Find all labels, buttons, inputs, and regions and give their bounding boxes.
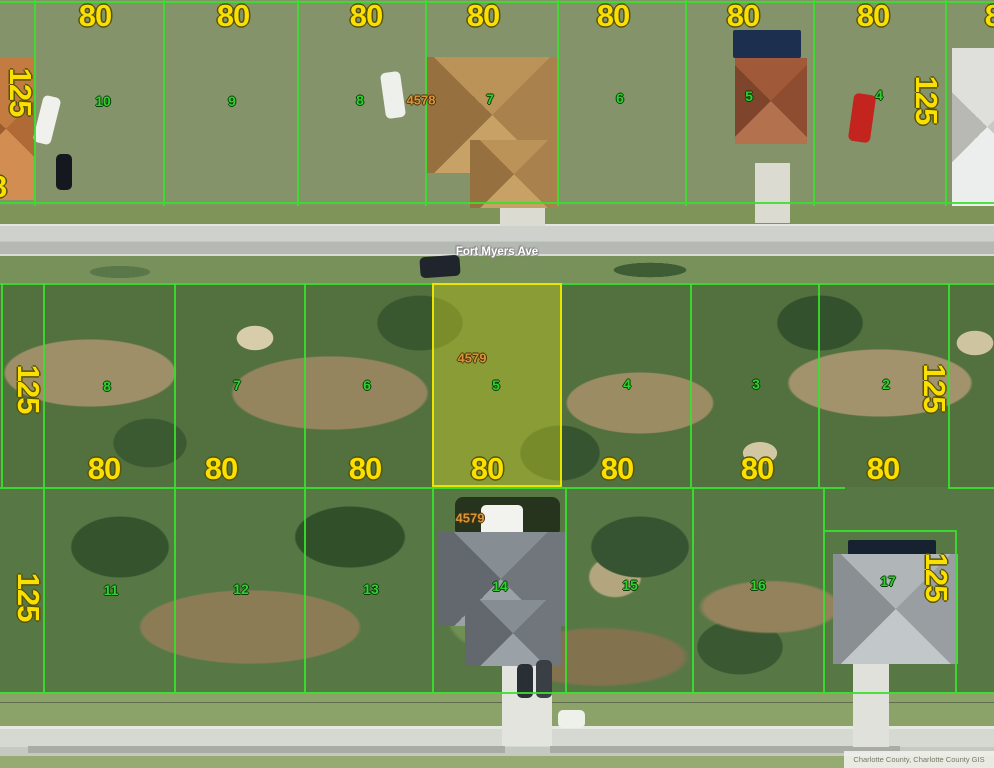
- lot-number-label: 11: [104, 582, 119, 598]
- dimension-label: 80: [601, 451, 633, 487]
- dimension-label: 125: [916, 364, 952, 413]
- dimension-label: 80: [205, 451, 237, 487]
- parcel-map-screenshot: Fort Myers Ave 8080808080808080880808080…: [0, 0, 994, 768]
- lot-number-label: 14: [492, 578, 508, 594]
- lot-number-label: 6: [616, 90, 624, 106]
- lot-number-label: 8: [103, 378, 111, 394]
- parcel-id-label: 4578: [407, 93, 436, 108]
- lot-number-label: 13: [363, 581, 379, 597]
- dimension-label: 80: [467, 0, 499, 34]
- lot-number-label: 5: [492, 377, 500, 393]
- parcel-id-label: 4579: [458, 351, 487, 366]
- dimension-label: 80: [985, 0, 994, 34]
- dimension-label: 80: [350, 0, 382, 34]
- lot-number-label: 4: [623, 376, 631, 392]
- dimension-label: 80: [349, 451, 381, 487]
- dimension-label: 80: [741, 451, 773, 487]
- dimension-label: 125: [918, 553, 954, 602]
- annotation-layer: Fort Myers Ave 8080808080808080880808080…: [0, 0, 994, 768]
- dimension-label: 80: [217, 0, 249, 34]
- street-name-label: Fort Myers Ave: [456, 246, 538, 258]
- dimension-label: 80: [727, 0, 759, 34]
- attribution-bar: Charlotte County, Charlotte County GIS: [844, 751, 994, 768]
- lot-number-label: 4: [875, 87, 883, 103]
- dimension-label: 80: [88, 451, 120, 487]
- lot-number-label: 15: [622, 577, 638, 593]
- lot-number-label: 2: [882, 376, 890, 392]
- dimension-label: 125: [2, 68, 38, 117]
- lot-number-label: 5: [745, 88, 753, 104]
- attribution-text: Charlotte County, Charlotte County GIS: [853, 755, 984, 764]
- lot-number-label: 6: [363, 377, 371, 393]
- dimension-label: 80: [597, 0, 629, 34]
- lot-number-label: 17: [880, 573, 896, 589]
- lot-number-label: 16: [750, 577, 766, 593]
- lot-number-label: 10: [95, 93, 111, 109]
- dimension-label: 8: [0, 169, 6, 205]
- dimension-label: 80: [857, 0, 889, 34]
- dimension-label: 125: [908, 76, 944, 125]
- dimension-label: 80: [471, 451, 503, 487]
- dimension-label: 125: [10, 573, 46, 622]
- dimension-label: 80: [79, 0, 111, 34]
- lot-number-label: 7: [233, 377, 241, 393]
- lot-number-label: 7: [486, 91, 494, 107]
- lot-number-label: 9: [228, 93, 236, 109]
- dimension-label: 80: [867, 451, 899, 487]
- lot-number-label: 3: [752, 376, 760, 392]
- lot-number-label: 12: [233, 581, 249, 597]
- dimension-label: 125: [10, 365, 46, 414]
- parcel-id-label: 4579: [456, 511, 485, 526]
- lot-number-label: 8: [356, 92, 364, 108]
